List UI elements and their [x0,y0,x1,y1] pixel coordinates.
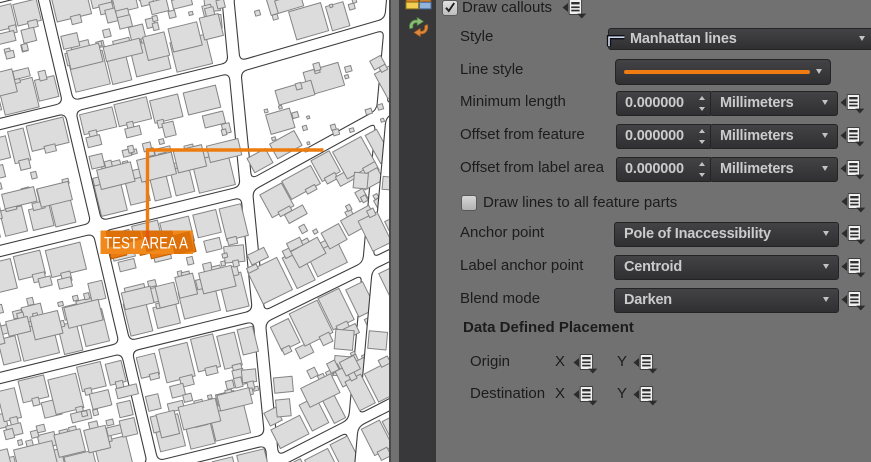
svg-text:TEST AREA A: TEST AREA A [104,235,188,253]
